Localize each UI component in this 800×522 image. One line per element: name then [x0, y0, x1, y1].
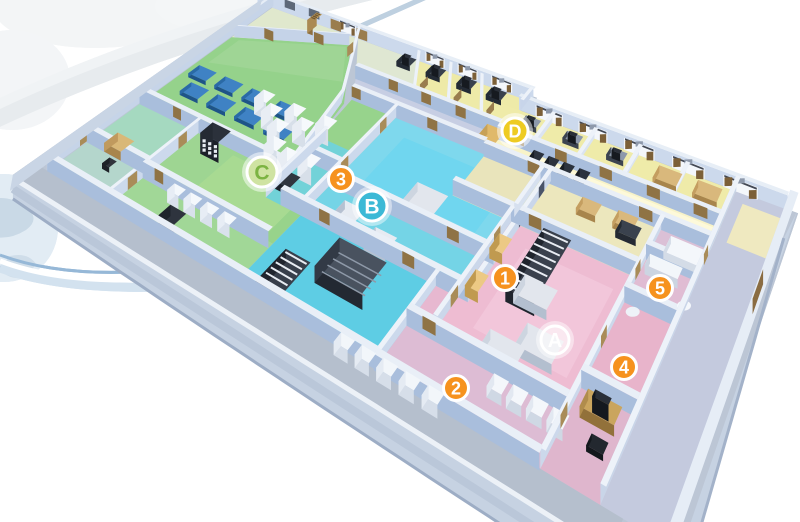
- svg-text:3: 3: [336, 169, 346, 189]
- svg-text:4: 4: [619, 357, 629, 377]
- svg-text:5: 5: [655, 278, 665, 298]
- svg-text:2: 2: [451, 378, 461, 398]
- svg-text:B: B: [364, 196, 379, 219]
- svg-text:C: C: [254, 162, 269, 185]
- svg-text:A: A: [548, 330, 562, 352]
- svg-text:1: 1: [500, 268, 510, 288]
- svg-text:D: D: [509, 121, 522, 141]
